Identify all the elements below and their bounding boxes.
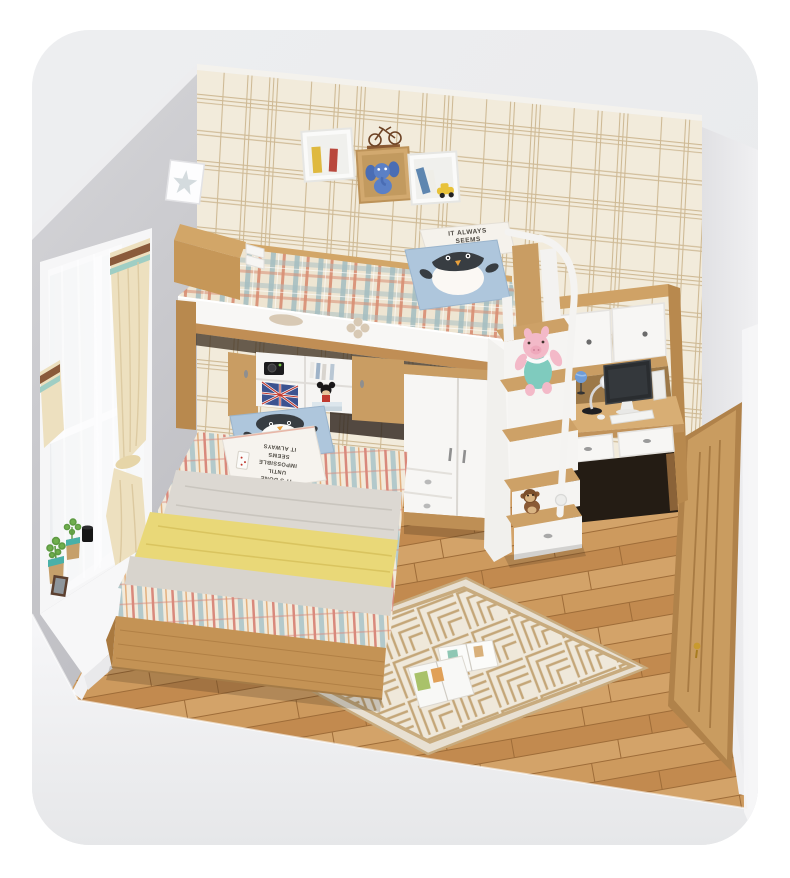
bedroom-scene: IT ALWAYS SEEMS IMPOSSIBLE <box>0 0 790 878</box>
cube-shelf-white-2 <box>408 151 459 204</box>
camera <box>264 362 284 375</box>
furniture-product-render: IT ALWAYS SEEMS IMPOSSIBLE <box>0 0 790 878</box>
mouse <box>597 414 605 419</box>
cube-shelf-white-1 <box>301 128 354 181</box>
book <box>311 147 322 174</box>
sliding-door-right <box>612 303 666 362</box>
pig-leg <box>525 384 535 396</box>
cube-shelf-wood <box>356 147 412 203</box>
door-knob <box>586 339 591 344</box>
drawer-knob <box>425 480 432 485</box>
photo-frame <box>51 575 69 597</box>
drawer-knob <box>424 504 431 509</box>
star-frame <box>166 160 205 204</box>
handrail-joint <box>556 495 567 506</box>
right-cut-edge <box>742 324 758 845</box>
storage-door-right <box>352 356 404 424</box>
bed-post-left <box>176 300 196 430</box>
door-handle <box>694 643 701 650</box>
binder <box>652 370 666 400</box>
jar-illustration <box>236 451 249 469</box>
drawer-handle <box>544 534 553 538</box>
pig-leg <box>542 382 552 394</box>
book <box>329 148 338 171</box>
black-mug <box>82 526 93 543</box>
pig-snout <box>531 346 542 355</box>
storage-door-left <box>228 352 258 420</box>
door-knob <box>642 331 647 336</box>
penguin-pillow-upper <box>405 240 510 310</box>
union-jack-box <box>262 382 298 408</box>
handrail-post <box>502 296 514 342</box>
book-stack <box>312 402 342 407</box>
